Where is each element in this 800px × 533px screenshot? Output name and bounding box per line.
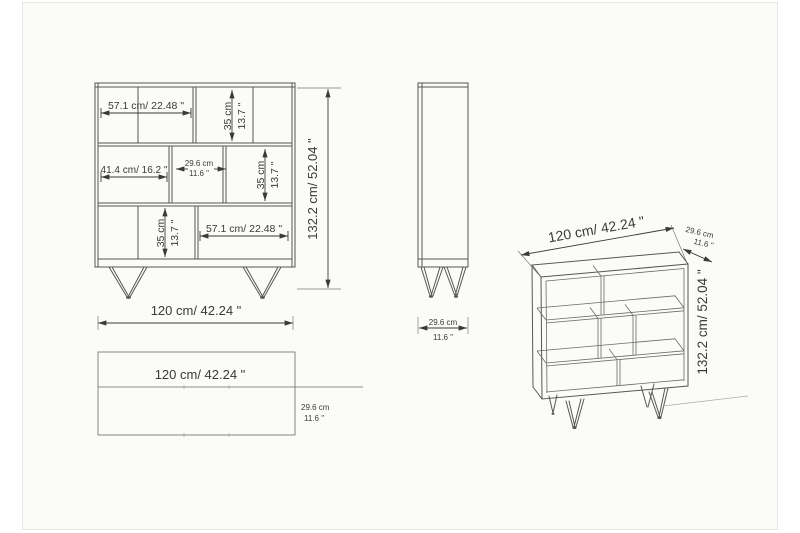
side-depth-cm-label: 29.6 cm [429, 318, 458, 327]
front-overall-width-label: 120 cm/ 42.24 " [151, 303, 242, 318]
front-top-height-cm-label: 35 cm [222, 101, 234, 130]
front-bottom-width-label: 57.1 cm/ 22.48 " [206, 223, 282, 235]
top-depth-in-label: 11.6 " [304, 414, 324, 423]
front-middle-height-in-label: 13.7 " [269, 161, 281, 188]
dimension-drawing-image: 57.1 cm/ 22.48 " 35 cm 13.7 " 41.4 cm/ 1… [0, 0, 800, 533]
front-top-width-label: 57.1 cm/ 22.48 " [108, 100, 184, 112]
side-leg-foot-right [454, 295, 458, 297]
perspective-height-label: 132.2 cm/ 52.04 " [695, 269, 710, 375]
perspective-leg-foot-left [572, 427, 576, 430]
front-overall-height-label: 132.2 cm/ 52.04 " [305, 138, 320, 240]
top-width-label: 120 cm/ 42.24 " [155, 367, 246, 382]
drawing-svg: 57.1 cm/ 22.48 " 35 cm 13.7 " 41.4 cm/ 1… [0, 0, 800, 533]
front-bottom-height-cm-label: 35 cm [155, 218, 167, 247]
front-bottom-height-in-label: 13.7 " [169, 219, 181, 246]
front-leg-foot-left [126, 296, 131, 299]
front-middle-height-cm-label: 35 cm [255, 160, 267, 189]
front-leg-foot-right [260, 296, 265, 299]
front-middle-center-width-cm-label: 29.6 cm [185, 159, 214, 168]
front-middle-center-width-in-label: 11.6 " [189, 169, 209, 178]
perspective-leg-foot-back [552, 413, 555, 415]
front-top-height-in-label: 13.7 " [236, 102, 248, 129]
front-middle-left-width-label: 41.4 cm/ 16.2 " [101, 165, 168, 176]
side-leg-foot-left [429, 295, 433, 297]
top-depth-cm-label: 29.6 cm [301, 403, 330, 412]
side-depth-in-label: 11.6 " [433, 333, 453, 342]
perspective-leg-foot-right [657, 417, 661, 420]
